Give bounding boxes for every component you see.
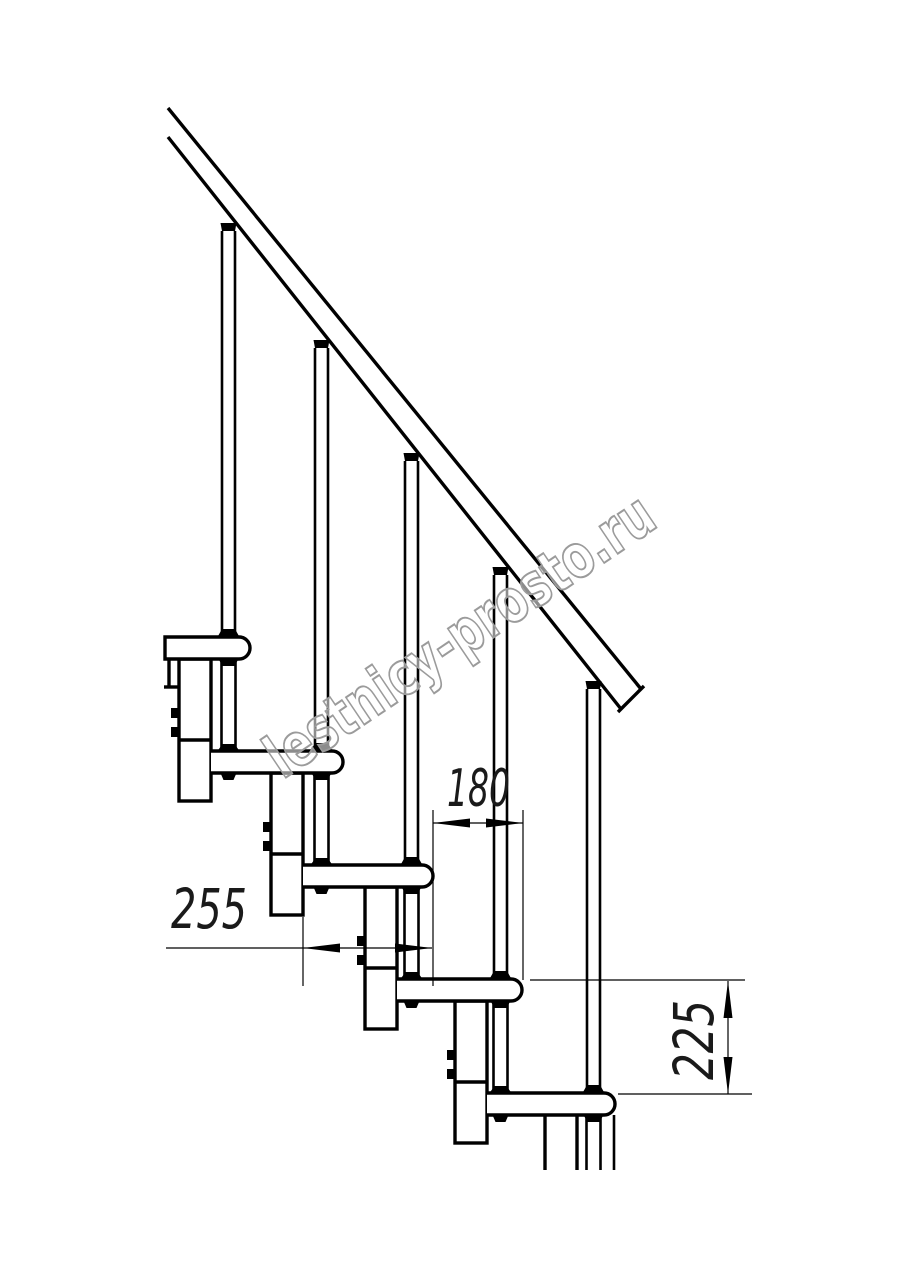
support-stem-4 — [447, 1001, 487, 1143]
baluster-3-top-cap — [404, 453, 420, 461]
upper-module-cut — [164, 659, 179, 687]
dimension-225: 225 — [530, 980, 752, 1094]
spacer-tube-2 — [315, 773, 329, 865]
baluster-2-top-cap — [314, 340, 330, 348]
support-stem-1 — [171, 659, 211, 801]
support-stem-5 — [545, 1115, 577, 1170]
dimension-225-label: 225 — [662, 1000, 726, 1080]
support-stem-3 — [357, 887, 397, 1029]
tread-5 — [487, 1093, 615, 1115]
baluster-5-top-cap — [586, 681, 602, 689]
tread-1 — [165, 637, 250, 659]
tread-4 — [397, 979, 522, 1001]
arrow-right-icon — [395, 944, 432, 953]
arrow-left-icon — [303, 944, 340, 953]
staircase-drawing: 180 255 225 lestnicy-prosto.ru — [0, 0, 914, 1280]
tread-3 — [303, 865, 433, 887]
baluster-1 — [218, 223, 240, 637]
dimension-180-label: 180 — [447, 759, 510, 819]
spacer-tube-5 — [587, 1115, 615, 1170]
spacer-tube-4 — [494, 1001, 508, 1093]
arrow-right-icon — [486, 819, 523, 828]
baluster-1-top-cap — [221, 223, 237, 231]
dimension-180: 180 — [433, 759, 523, 986]
spacer-tube-1 — [222, 659, 236, 751]
spacer-tube-3 — [405, 887, 419, 979]
arrow-left-icon — [433, 819, 470, 828]
support-stem-2 — [263, 773, 303, 915]
dimension-255-label: 255 — [171, 877, 247, 941]
baluster-5 — [583, 681, 605, 1093]
